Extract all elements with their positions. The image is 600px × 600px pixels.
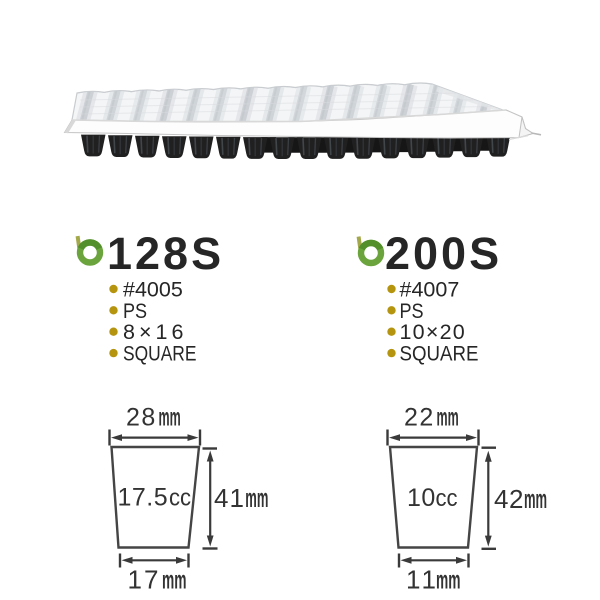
svg-text:mm: mm — [245, 484, 268, 513]
svg-text:41: 41 — [214, 483, 245, 513]
svg-text:11: 11 — [406, 565, 439, 595]
svg-text:mm: mm — [159, 404, 181, 432]
svg-text:#4007: #4007 — [400, 278, 460, 302]
svg-text:mm: mm — [162, 566, 186, 595]
svg-text:17: 17 — [128, 565, 161, 595]
svg-text:28: 28 — [126, 404, 157, 432]
svg-text:mm: mm — [437, 404, 459, 432]
svg-text:SQUARE: SQUARE — [123, 342, 196, 366]
svg-text:#4005: #4005 — [123, 278, 183, 302]
svg-text:8×16: 8×16 — [123, 320, 187, 344]
svg-text:10×20: 10×20 — [400, 320, 466, 344]
svg-text:200S: 200S — [385, 228, 502, 279]
svg-text:128S: 128S — [107, 228, 224, 279]
svg-text:cc: cc — [436, 484, 458, 511]
svg-text:17.5: 17.5 — [118, 484, 169, 512]
svg-text:mm: mm — [436, 566, 460, 595]
svg-text:SQUARE: SQUARE — [400, 342, 479, 365]
svg-text:10: 10 — [407, 484, 436, 512]
svg-text:42: 42 — [494, 484, 524, 514]
svg-text:22: 22 — [404, 404, 435, 432]
svg-text:cc: cc — [169, 484, 191, 511]
svg-text:mm: mm — [524, 485, 547, 514]
